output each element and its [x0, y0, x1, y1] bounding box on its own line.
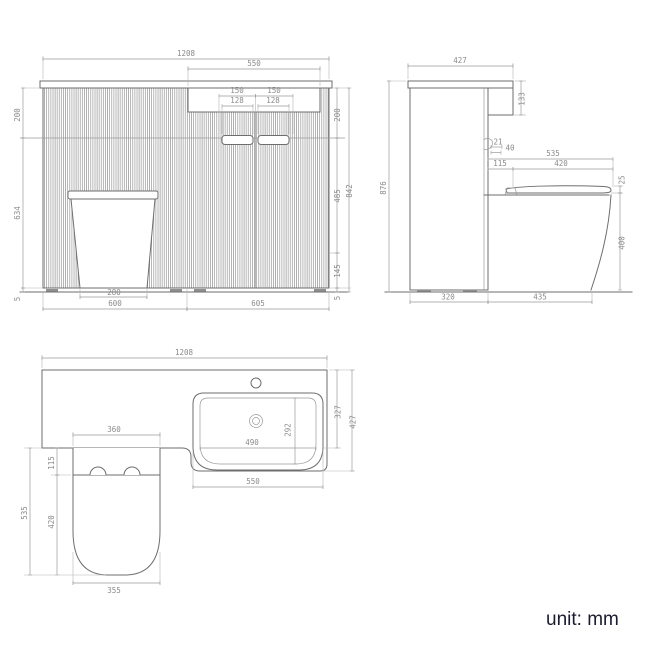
dim-plan-seat-depth: 420 [47, 515, 56, 529]
dim-front-top-right: 200 [333, 108, 342, 122]
dim-plan-basin-inner-depth: 292 [284, 423, 293, 437]
dim-side-seat-back: 115 [493, 159, 507, 168]
dim-front-overall-height: 842 [345, 184, 354, 198]
dim-plan-basin-outer-width: 550 [246, 477, 260, 486]
toilet-seat-front [68, 191, 158, 199]
cabinet-side [410, 88, 488, 290]
dim-side-overall-height: 876 [379, 181, 388, 195]
toilet-body-front [71, 199, 155, 288]
dim-front-right-section: 605 [251, 299, 265, 308]
side-elevation-view: 427 133 876 21 40 535 115 420 25 400 320… [379, 56, 632, 304]
dim-front-overall-width: 1208 [177, 49, 196, 58]
dim-side-panel-height: 133 [518, 92, 527, 106]
dim-plan-basin-inner-width: 490 [245, 438, 259, 447]
dim-side-seat-thickness: 25 [618, 175, 627, 184]
dim-side-seat-depth: 420 [554, 159, 568, 168]
front-elevation-view: 1208 550 150 150 128 128 200 634 5 200 4… [13, 49, 354, 311]
dim-side-seat-total: 535 [546, 149, 560, 158]
dim-plan-toilet-depth: 535 [20, 506, 29, 520]
top-recess [188, 88, 320, 112]
door-handle-right [258, 136, 289, 145]
front-feet [46, 289, 326, 292]
dim-side-pan-height: 400 [618, 236, 627, 250]
basin-outer [193, 393, 323, 470]
technical-drawing-canvas: 1208 550 150 150 128 128 200 634 5 200 4… [0, 0, 650, 650]
dim-side-cabinet-depth: 320 [441, 293, 455, 302]
dim-front-recess-width: 550 [247, 59, 261, 68]
dim-front-left-section: 600 [108, 299, 122, 308]
dim-front-handle-width-right: 128 [266, 96, 280, 105]
vanity-technical-drawing: 1208 550 150 150 128 128 200 634 5 200 4… [0, 0, 650, 650]
dim-plan-counter-depth: 427 [349, 415, 358, 429]
dim-side-hinge-depth: 40 [505, 144, 515, 153]
countertop-front [40, 81, 332, 88]
dim-plan-hinge-zone: 115 [47, 456, 56, 470]
dim-side-pan-projection: 435 [533, 293, 547, 302]
dim-front-handle-pitch-left: 150 [230, 86, 244, 95]
dim-front-top-left: 200 [13, 108, 22, 122]
dim-plan-basin-front-offset: 327 [334, 405, 343, 419]
dim-plan-toilet-front-width: 355 [107, 586, 121, 595]
dim-front-toilet-base: 280 [107, 288, 121, 297]
dim-front-right-gap: 5 [333, 296, 342, 301]
dim-plan-overall-width: 1208 [175, 348, 194, 357]
pan-front-curve [591, 195, 611, 290]
dim-front-door-height: 485 [333, 189, 342, 203]
unit-label: unit: mm [546, 609, 619, 630]
dim-plan-toilet-width: 360 [107, 425, 121, 434]
dim-front-left-gap: 5 [13, 297, 22, 302]
dim-side-hinge-offset: 21 [493, 138, 502, 147]
dim-front-left-height: 634 [13, 206, 22, 220]
dim-front-base-height: 145 [333, 264, 342, 278]
side-recess-panel [488, 88, 513, 115]
faucet-hole [251, 378, 261, 388]
dim-side-counter-depth: 427 [453, 56, 467, 65]
plan-view: 1208 490 292 550 327 427 360 115 420 535… [20, 348, 358, 595]
dim-front-handle-width-left: 128 [230, 96, 244, 105]
countertop-side [408, 81, 513, 88]
toilet-seat-side [506, 186, 611, 193]
toilet-plan [73, 448, 160, 575]
dim-front-handle-pitch-right: 150 [267, 86, 281, 95]
door-handle-left [222, 136, 253, 145]
